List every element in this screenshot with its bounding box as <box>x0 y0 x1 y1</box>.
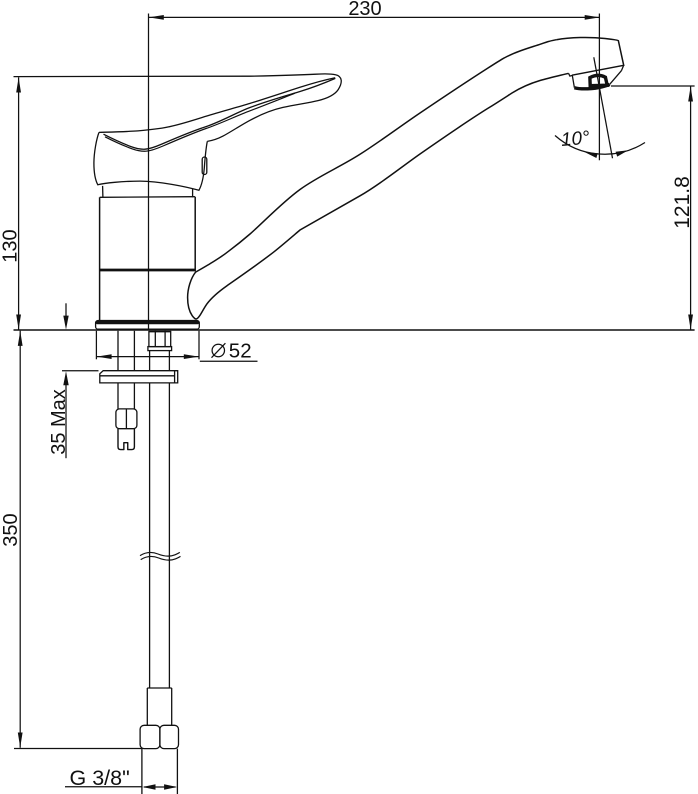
svg-text:350: 350 <box>0 513 22 546</box>
svg-text:121.8: 121.8 <box>671 176 694 229</box>
svg-text:35 Max: 35 Max <box>48 389 70 455</box>
svg-text:G 3/8": G 3/8" <box>70 766 130 790</box>
svg-text:10°: 10° <box>560 128 591 151</box>
svg-text:52: 52 <box>229 339 252 362</box>
svg-text:230: 230 <box>348 0 381 20</box>
svg-text:130: 130 <box>0 229 21 262</box>
